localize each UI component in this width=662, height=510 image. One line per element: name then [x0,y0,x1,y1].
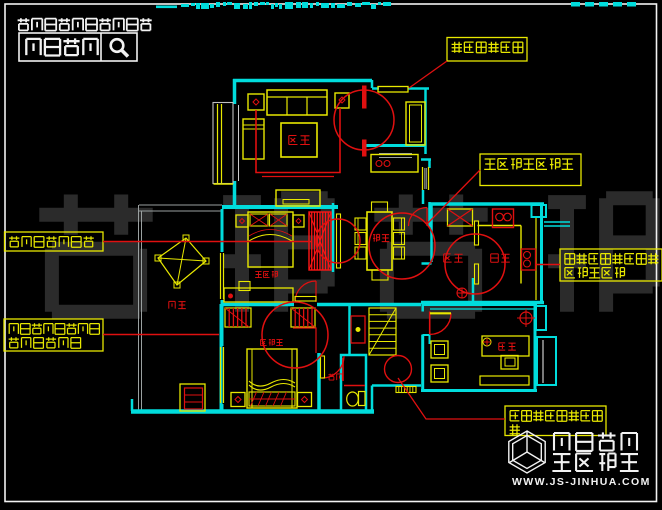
svg-text:WWW.JS-JINHUA.COM: WWW.JS-JINHUA.COM [512,476,651,488]
